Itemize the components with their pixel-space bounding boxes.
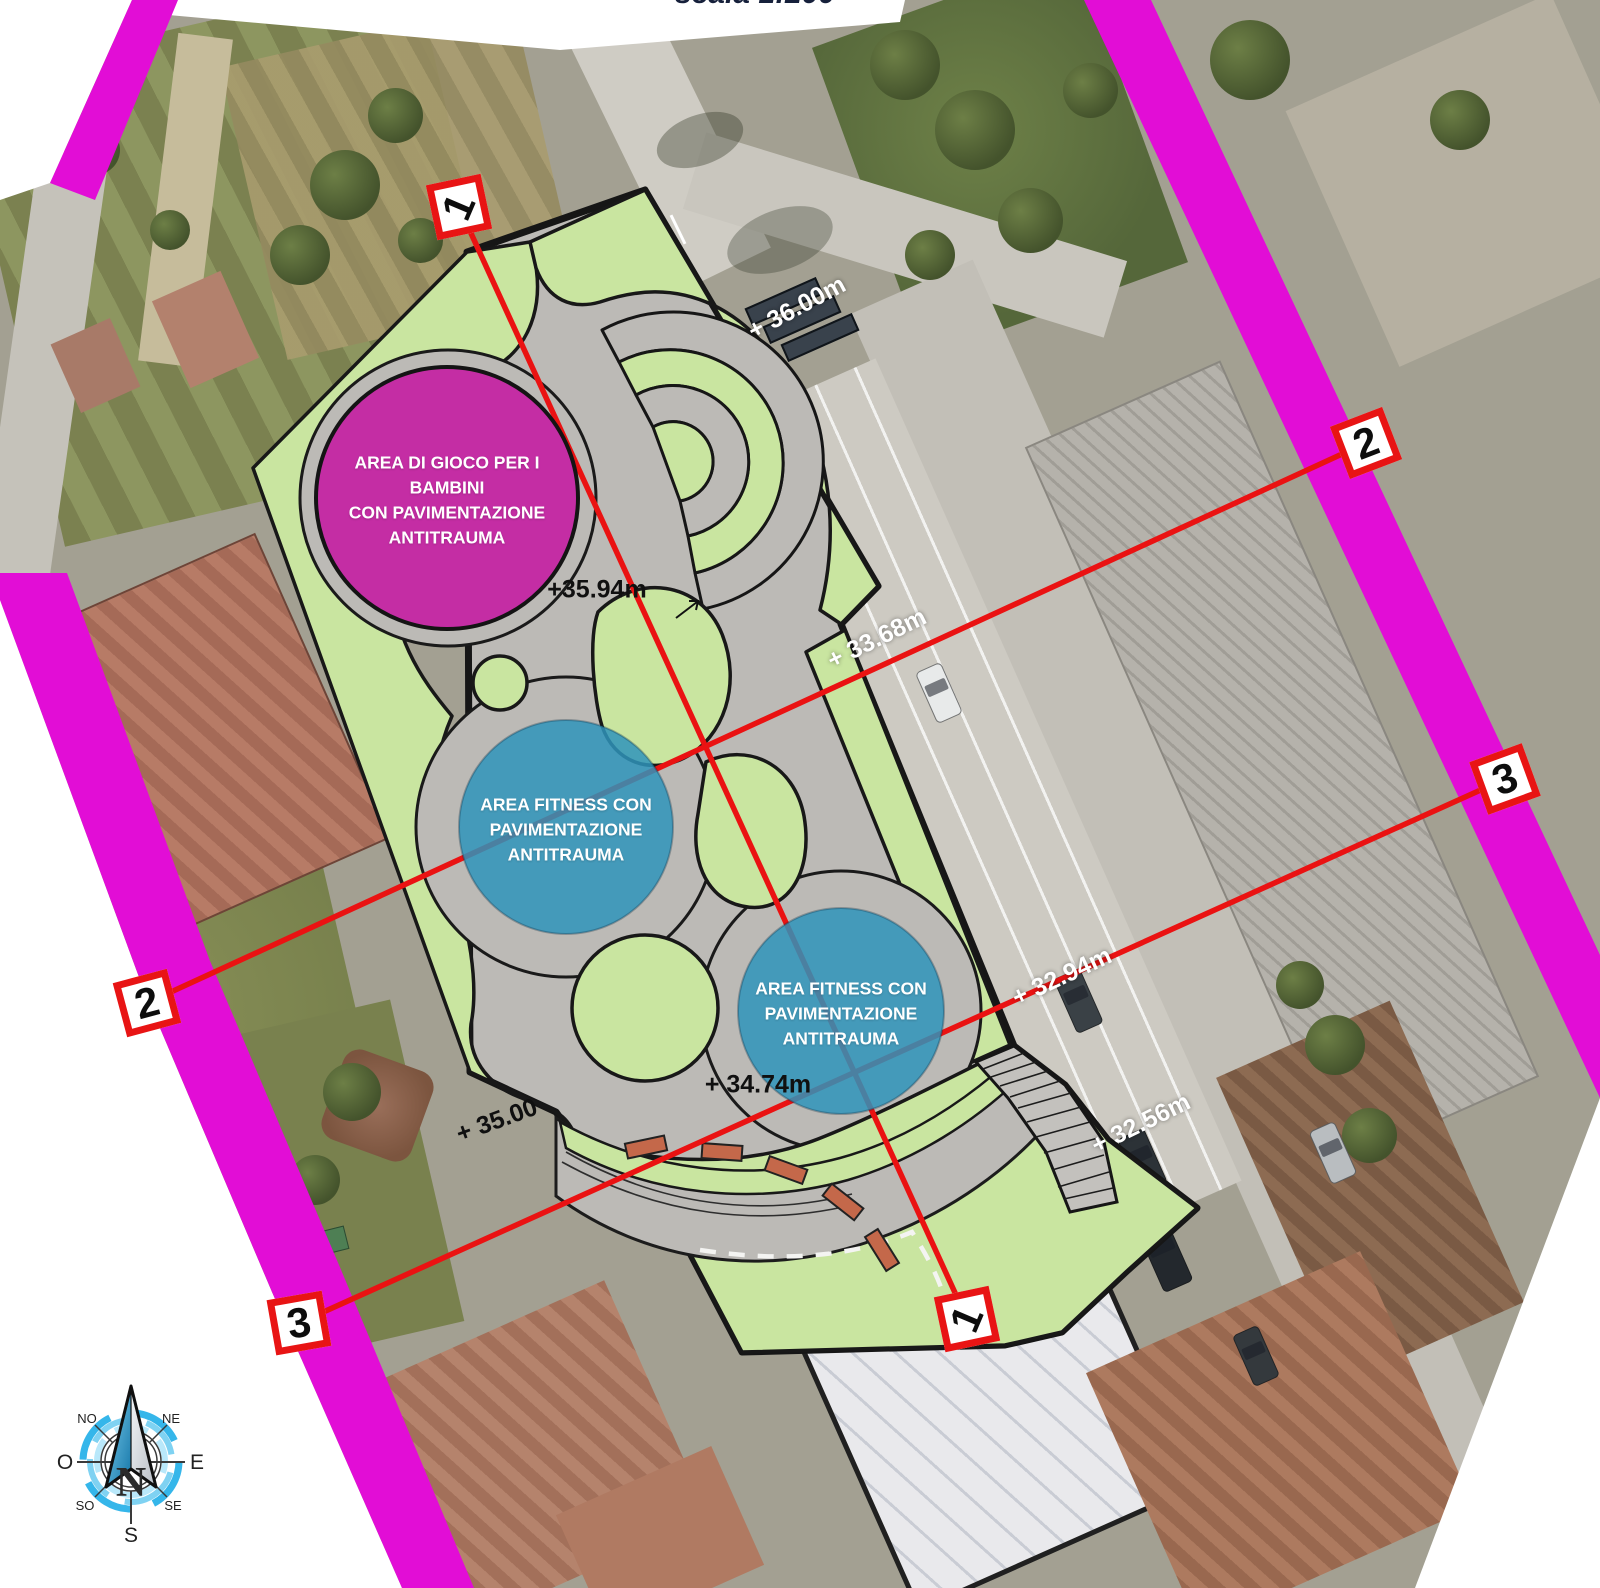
site-plan-sheet: AREA DI GIOCO PER I BAMBINI CON PAVIMENT…	[0, 0, 1600, 1588]
compass-label-n: N	[116, 1460, 146, 1506]
grass-north-band	[530, 190, 713, 305]
compass-label-no: NO	[77, 1411, 97, 1426]
compass-label-ne: NE	[162, 1411, 180, 1426]
compass-label-se: SE	[164, 1498, 182, 1513]
compass-label-so: SO	[76, 1498, 95, 1513]
play-area-label: AREA DI GIOCO PER I BAMBINI CON PAVIMENT…	[327, 450, 567, 549]
compass-rose: N NO NE SO SE O E S	[25, 1352, 240, 1562]
section-marker-numeral: 3	[283, 1297, 314, 1348]
section-marker-numeral: 2	[129, 977, 164, 1029]
elevation-label-35.94: +35.94m	[547, 576, 646, 605]
fitness-area-2-label: AREA FITNESS CON PAVIMENTAZIONE ANTITRAU…	[746, 977, 936, 1052]
compass-label-e: E	[190, 1451, 204, 1474]
elevation-label-34.74: + 34.74m	[705, 1071, 811, 1100]
section-marker-numeral: 3	[1486, 752, 1524, 805]
section-marker-3-left: 3	[267, 1291, 332, 1356]
section-marker-1-bottom: 1	[934, 1286, 1000, 1352]
grass-circle-small	[473, 656, 527, 710]
section-marker-numeral: 1	[940, 1299, 993, 1339]
scale-label: scala 1:200	[605, 0, 905, 11]
section-marker-numeral: 2	[1346, 416, 1385, 469]
section-marker-1-top: 1	[426, 174, 492, 240]
compass-label-s: S	[124, 1524, 138, 1547]
section-marker-numeral: 1	[432, 187, 485, 227]
park-plan	[0, 0, 1600, 1588]
grass-circle-mid	[572, 935, 718, 1081]
compass-label-o: O	[57, 1451, 73, 1474]
fitness-area-1-label: AREA FITNESS CON PAVIMENTAZIONE ANTITRAU…	[471, 793, 661, 868]
bench	[702, 1143, 743, 1161]
